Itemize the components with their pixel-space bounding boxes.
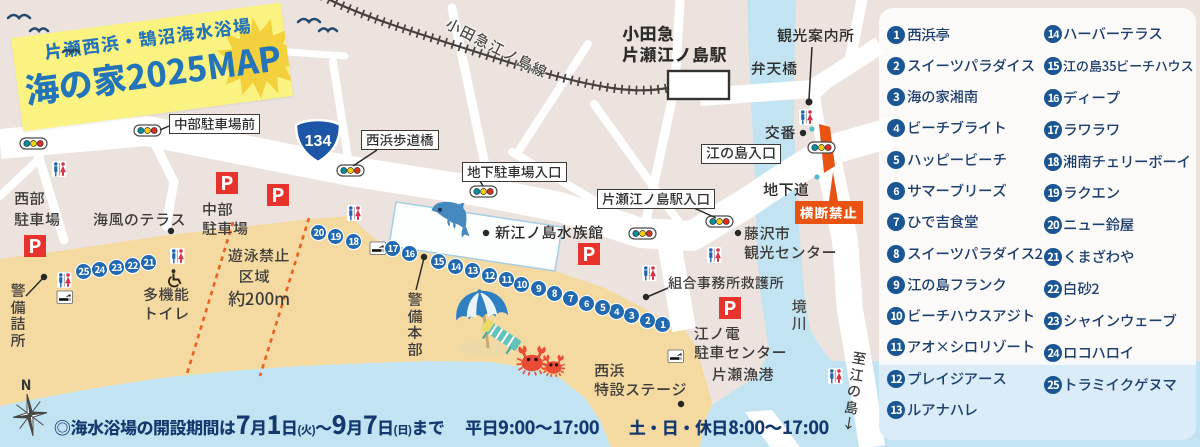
svg-text:134: 134 <box>305 133 332 150</box>
